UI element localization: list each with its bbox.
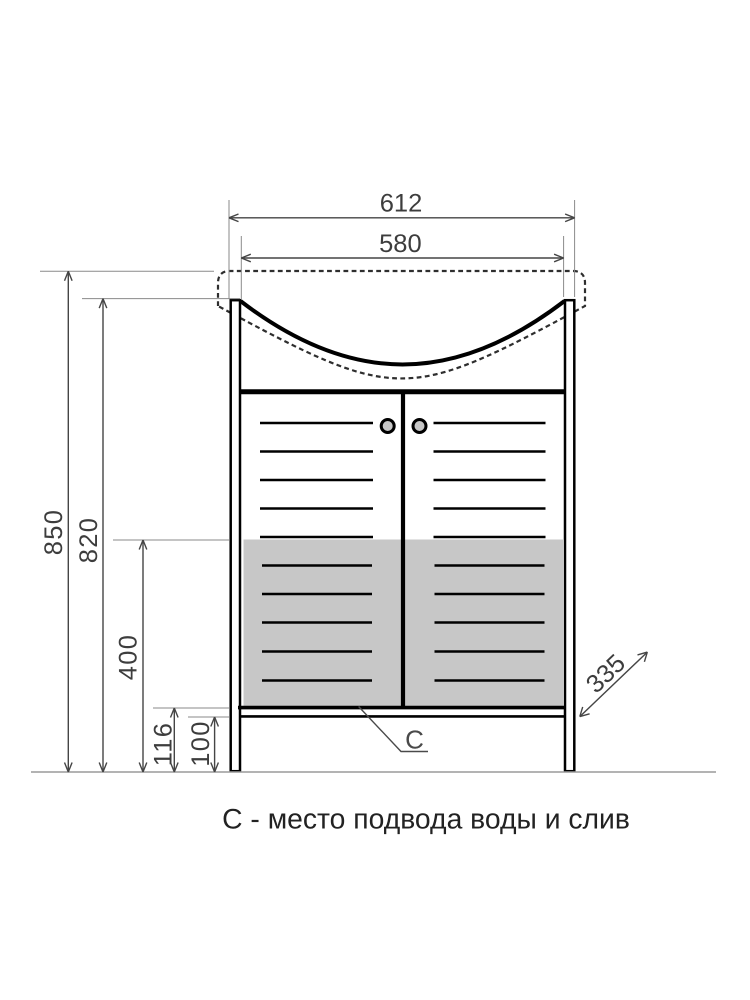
svg-text:400: 400: [114, 634, 142, 680]
svg-text:850: 850: [40, 509, 68, 555]
svg-text:335: 335: [581, 649, 631, 699]
svg-text:612: 612: [380, 190, 423, 218]
svg-text:С - место подвода воды и слив: С - место подвода воды и слив: [222, 803, 630, 835]
svg-text:820: 820: [75, 517, 103, 563]
svg-text:116: 116: [150, 722, 178, 767]
svg-text:100: 100: [187, 720, 215, 766]
svg-text:580: 580: [379, 230, 422, 258]
svg-text:C: C: [405, 725, 424, 755]
